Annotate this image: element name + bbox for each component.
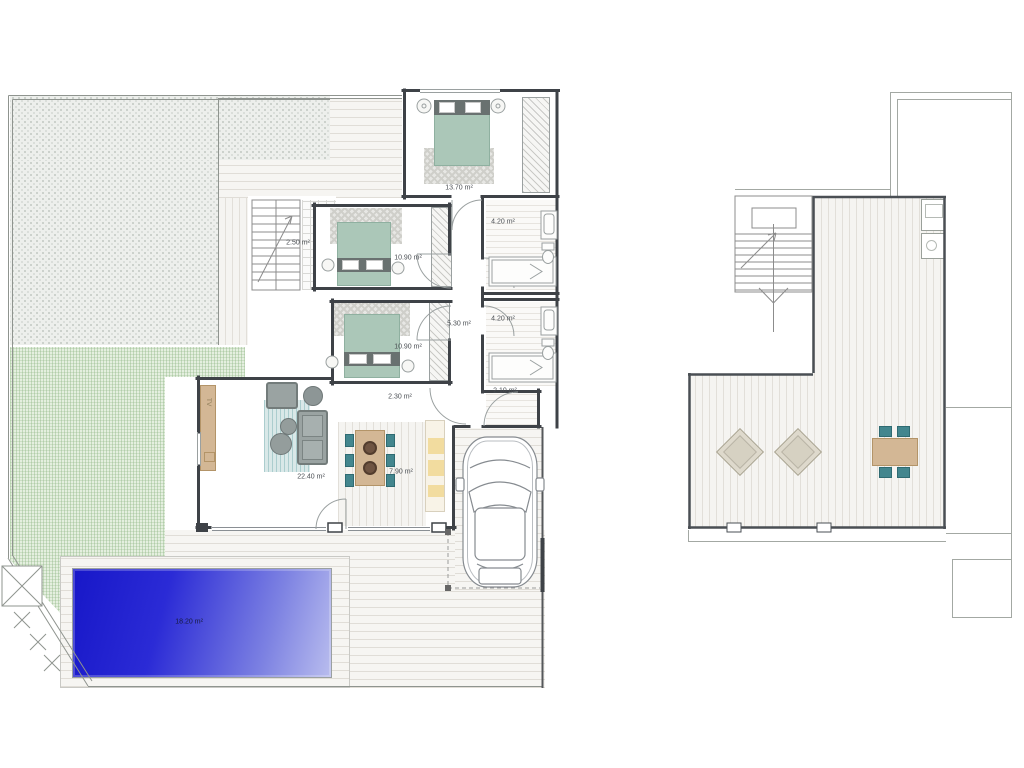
deck-top-strip bbox=[330, 98, 402, 198]
dining-plate-2 bbox=[363, 461, 377, 475]
dining-plate-1 bbox=[363, 441, 377, 455]
terrace-table bbox=[872, 438, 918, 466]
bedroom2-pillow-right bbox=[366, 260, 383, 270]
bedroom3-area-label: 10.90 m² bbox=[394, 344, 422, 351]
gravel-area-top bbox=[10, 95, 330, 160]
gravel-area-left bbox=[10, 160, 218, 345]
terrace-fixture-lower bbox=[921, 233, 945, 259]
bedroom1-wardrobe bbox=[522, 97, 550, 193]
bedroom1-area-label: 13.70 m² bbox=[445, 185, 473, 192]
stairs-upper bbox=[735, 196, 812, 332]
carport-deck bbox=[455, 428, 543, 590]
terrace-fixture-upper bbox=[921, 199, 945, 231]
kitchen-counter-cell-1 bbox=[428, 438, 444, 454]
kitchen-area-label: 7.90 m² bbox=[389, 469, 413, 476]
dining-chair-5 bbox=[386, 454, 395, 467]
bedroom2-bed bbox=[337, 222, 391, 286]
terrace-fixture-basin bbox=[926, 240, 937, 251]
deck-walkway bbox=[218, 198, 248, 345]
bedroom3-wardrobe bbox=[429, 301, 450, 381]
living-room-area-label: 22.40 m² bbox=[297, 474, 325, 481]
dining-chair-1 bbox=[345, 434, 354, 447]
tv-cabinet-drawer bbox=[204, 452, 215, 462]
kitchen-counter-cell-3 bbox=[428, 485, 444, 497]
sofa-cushion-1 bbox=[302, 415, 323, 437]
porch-floor bbox=[486, 392, 538, 425]
bedroom1-pillow-left bbox=[439, 102, 455, 113]
terrace-lounger-1-cushion bbox=[723, 435, 757, 469]
inner-hall-area-label: 2.30 m² bbox=[388, 394, 412, 401]
sofa bbox=[297, 410, 328, 465]
dining-chair-4 bbox=[386, 434, 395, 447]
bedroom3-pillow-right bbox=[373, 354, 391, 364]
bedroom2-wardrobe bbox=[431, 207, 452, 287]
stair-hall-area-label: 2.50 m² bbox=[286, 240, 310, 247]
bedroom2-area-label: 10.90 m² bbox=[394, 255, 422, 262]
sofa-cushion-2 bbox=[302, 440, 323, 460]
terrace-lounger-2-cushion bbox=[781, 435, 815, 469]
dining-table bbox=[355, 430, 385, 486]
bedroom3-bed bbox=[344, 314, 400, 378]
hallway-floor bbox=[451, 198, 484, 390]
bedroom2-pillow-left bbox=[342, 260, 359, 270]
deck-strip-over-bedroom2 bbox=[218, 160, 330, 198]
armchair bbox=[266, 382, 298, 409]
terrace-chair-2 bbox=[897, 426, 910, 437]
dining-chair-6 bbox=[386, 474, 395, 487]
bedroom1-pillow-right bbox=[465, 102, 481, 113]
bathroom1-area-label: 4.20 m² bbox=[491, 219, 515, 226]
dining-chair-2 bbox=[345, 454, 354, 467]
bedroom3-pillow-left bbox=[349, 354, 367, 364]
coffee-table-large bbox=[270, 433, 292, 455]
hallway-area-label: 5.30 m² bbox=[447, 321, 471, 328]
bathroom1-floor bbox=[486, 200, 556, 290]
pool-area-label: 18.20 m² bbox=[175, 618, 203, 625]
kitchen-counter bbox=[425, 420, 445, 512]
terrace-chair-3 bbox=[879, 467, 892, 478]
floor-plan-canvas: 18.20 m² TV bbox=[0, 0, 1024, 768]
terrace-chair-1 bbox=[879, 426, 892, 437]
porch-area-label: 2.10 m² bbox=[493, 388, 517, 395]
kitchen-counter-cell-2 bbox=[428, 460, 444, 476]
terrace-chair-4 bbox=[897, 467, 910, 478]
dining-chair-3 bbox=[345, 474, 354, 487]
terrace-fixture-inset bbox=[925, 204, 943, 218]
swimming-pool: 18.20 m² bbox=[72, 568, 332, 678]
side-table bbox=[303, 386, 323, 406]
tv-cabinet-label: TV bbox=[205, 398, 212, 406]
bathroom2-area-label: 4.20 m² bbox=[491, 316, 515, 323]
tv-cabinet: TV bbox=[200, 385, 216, 471]
solarium-terrace bbox=[688, 196, 946, 530]
